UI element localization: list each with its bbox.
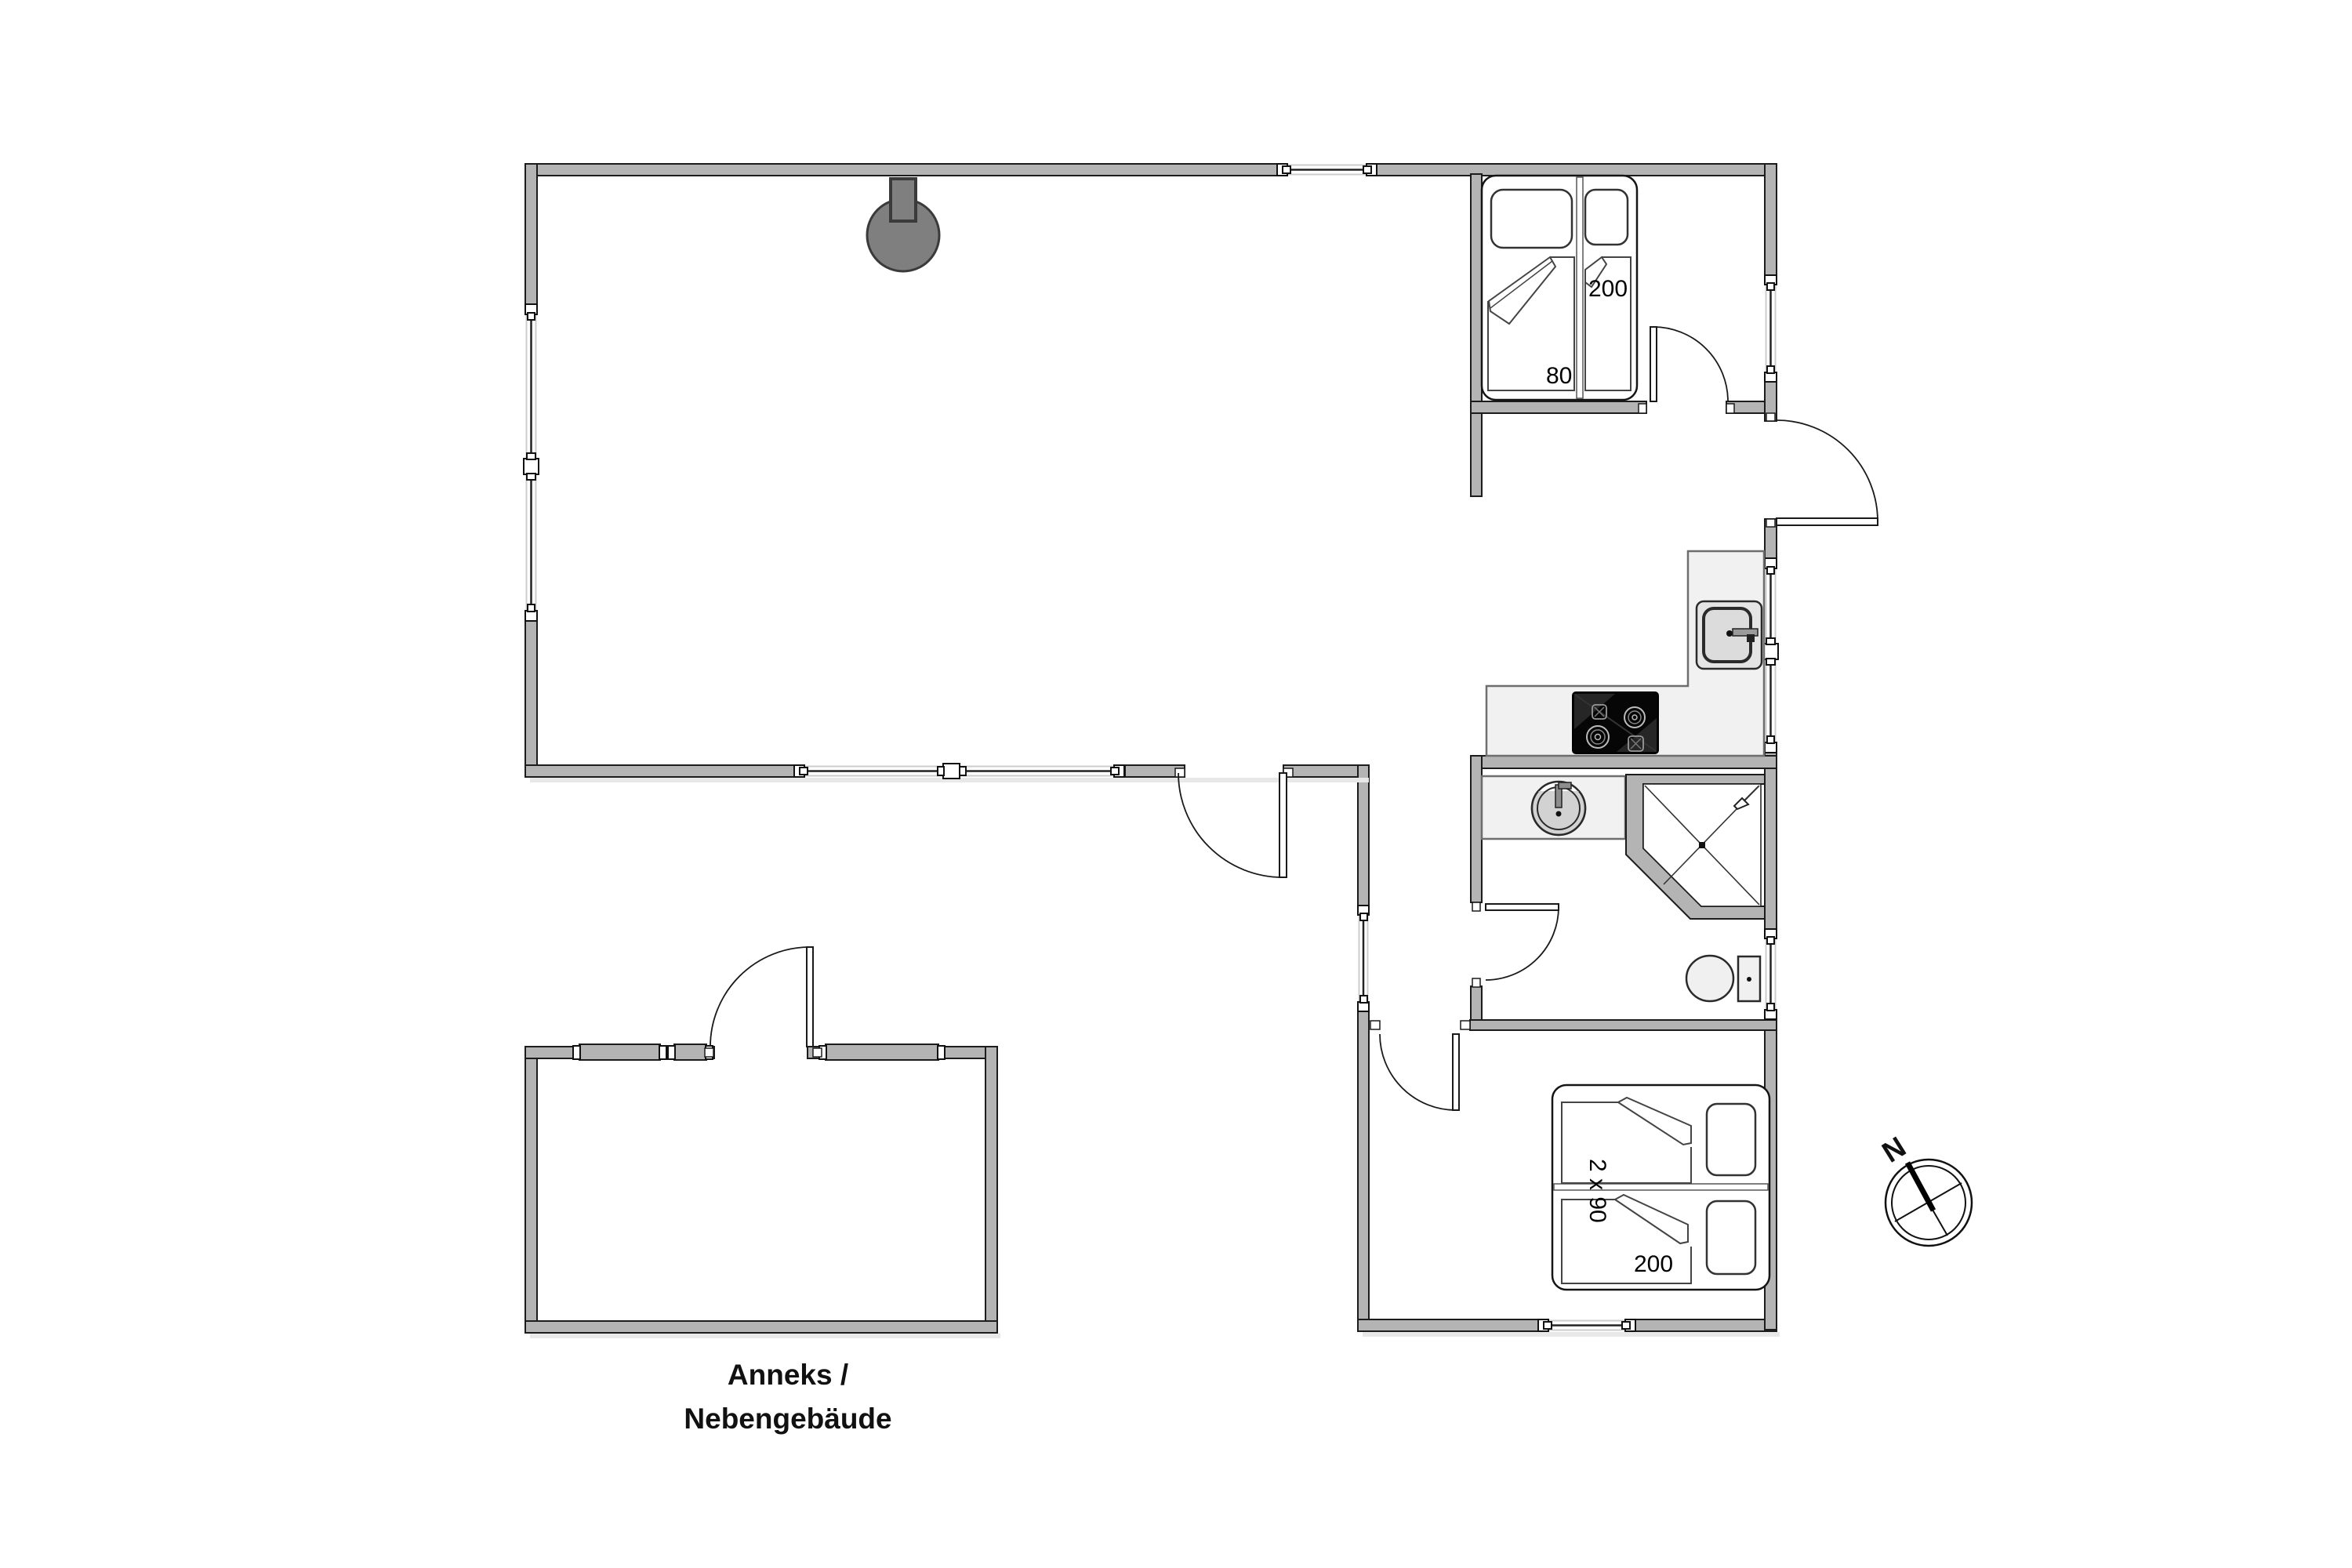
svg-text:200: 200 (1588, 276, 1628, 302)
svg-text:80: 80 (1546, 363, 1572, 389)
svg-text:Anneks /: Anneks / (728, 1359, 848, 1391)
svg-text:2 x 90: 2 x 90 (1584, 1159, 1610, 1223)
svg-text:Nebengebäude: Nebengebäude (684, 1403, 891, 1435)
svg-text:200: 200 (1634, 1251, 1673, 1277)
